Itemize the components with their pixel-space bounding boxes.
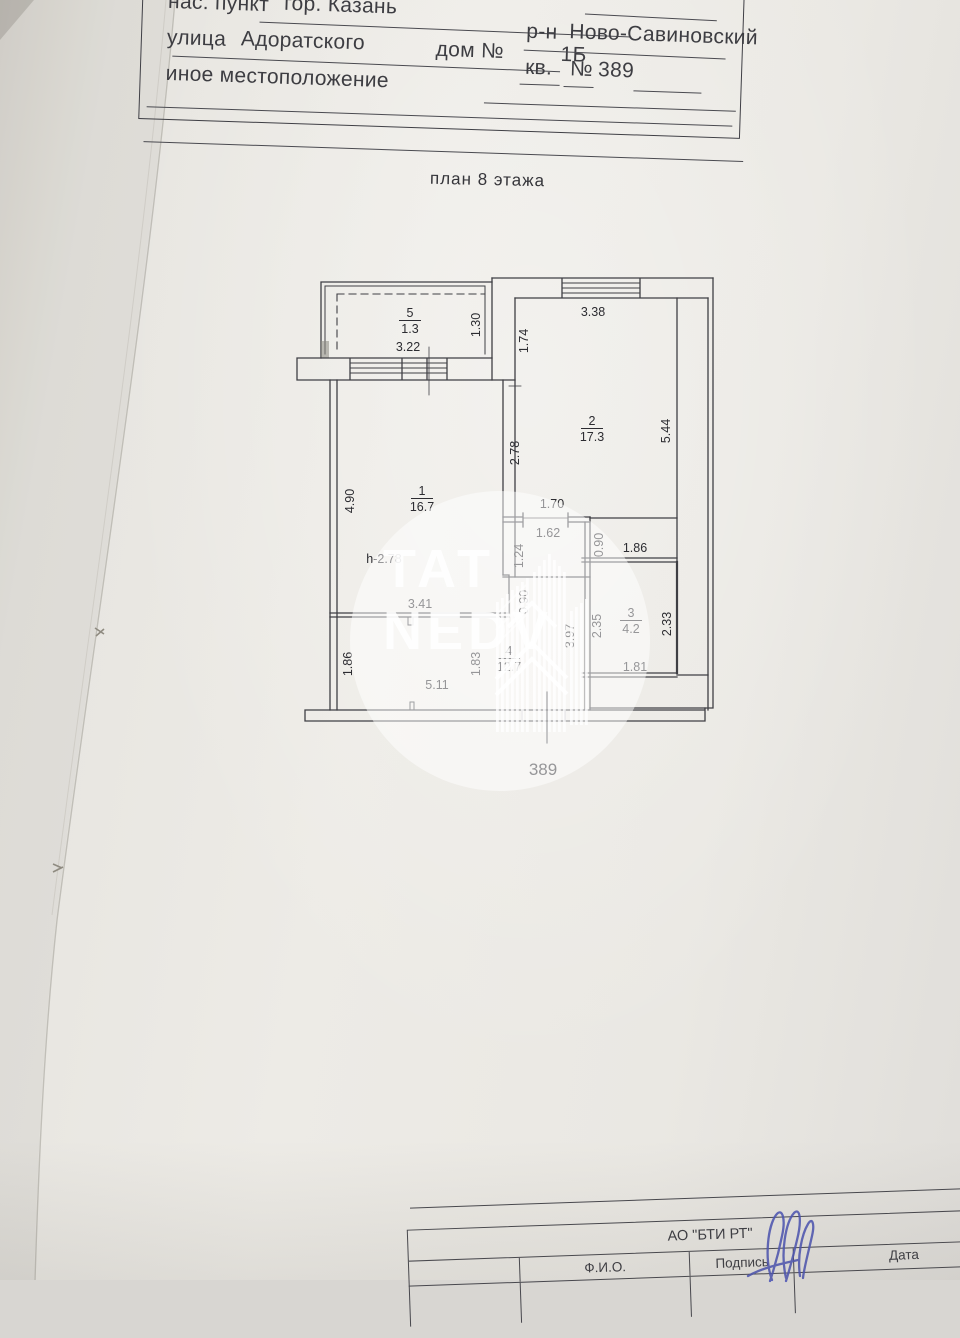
plan-title: план 8 этажа xyxy=(430,169,545,191)
balcony-wall-hatch-block xyxy=(321,341,329,358)
dimension-label: 5 xyxy=(407,306,414,320)
watermark: TAT NEDV xyxy=(350,491,650,791)
apartment-label: кв. xyxy=(525,56,553,81)
dimension-label: 1 xyxy=(419,484,426,498)
window-strip xyxy=(297,358,515,380)
dimension-label: 2 xyxy=(589,414,596,428)
district-label: р-н xyxy=(526,20,558,45)
right-wall xyxy=(677,278,713,710)
street-label: улица xyxy=(167,26,227,52)
footer-fio-cell xyxy=(520,1276,692,1322)
dimension-label: 3.38 xyxy=(581,305,605,319)
dimension-label: 3.22 xyxy=(396,340,420,354)
house-label: дом № xyxy=(435,38,504,64)
dimension-label: 2.78 xyxy=(508,441,522,465)
floor-plan-drawing: 116.7217.334.2412.751.33.221.303.381.745… xyxy=(280,255,740,815)
apartment-value: 389 xyxy=(598,58,635,83)
dimension-label: 1.74 xyxy=(517,329,531,353)
dimension-label: 1.3 xyxy=(401,322,418,336)
dimension-label: 4.90 xyxy=(343,489,357,513)
header-outer-frame-line xyxy=(143,141,743,162)
dimension-label: 2.33 xyxy=(660,612,674,636)
scanned-document-photo: { "document": { "header": { "settlement_… xyxy=(0,0,960,1280)
apartment-number-sign: № xyxy=(570,57,594,82)
dimension-label: 17.3 xyxy=(580,430,604,444)
photo-shadow xyxy=(0,1140,960,1280)
street-value: Адоратского xyxy=(241,27,366,55)
dimension-label: 1.30 xyxy=(469,313,483,337)
dimension-label: 1.86 xyxy=(623,541,647,555)
watermark-text-line1: TAT xyxy=(383,539,495,599)
dimension-label: 5.44 xyxy=(659,419,673,443)
